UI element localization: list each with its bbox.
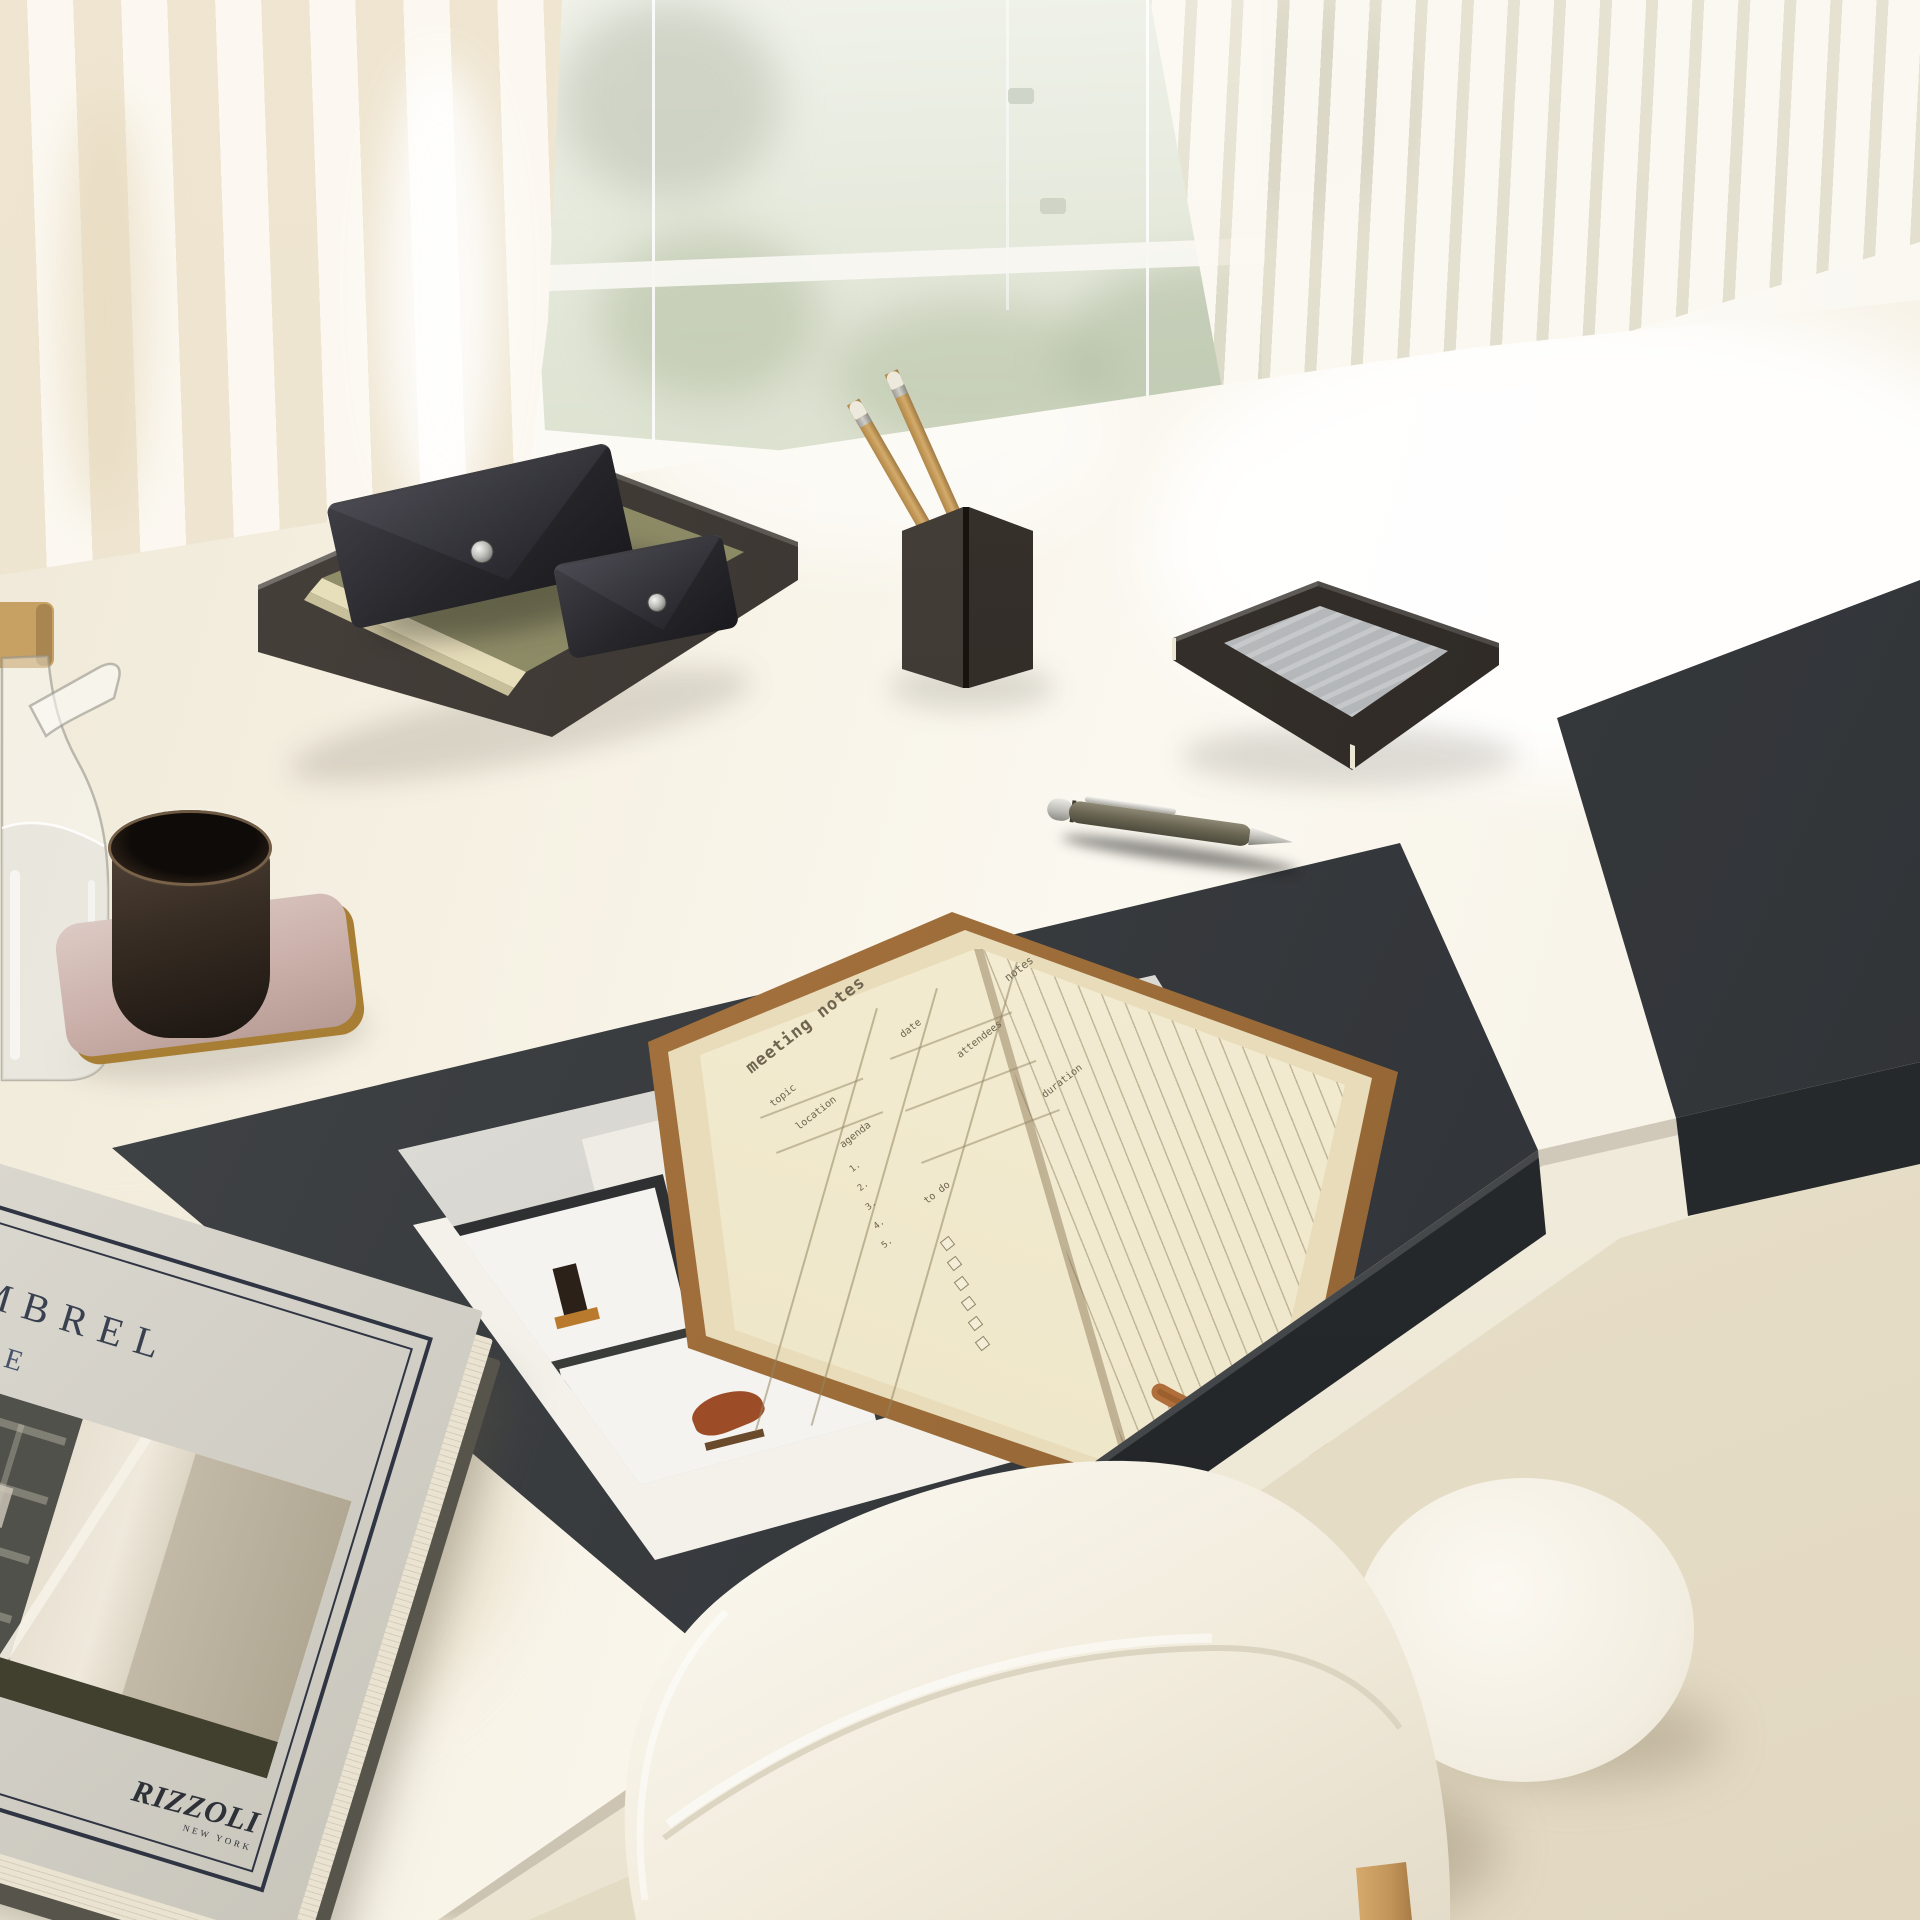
chair-leg — [1356, 1862, 1412, 1920]
desk-lifestyle-photo: meeting notes topic location date attend… — [0, 0, 1920, 1920]
chair-shell — [625, 1461, 1451, 1920]
desk-chair — [0, 0, 1920, 1920]
